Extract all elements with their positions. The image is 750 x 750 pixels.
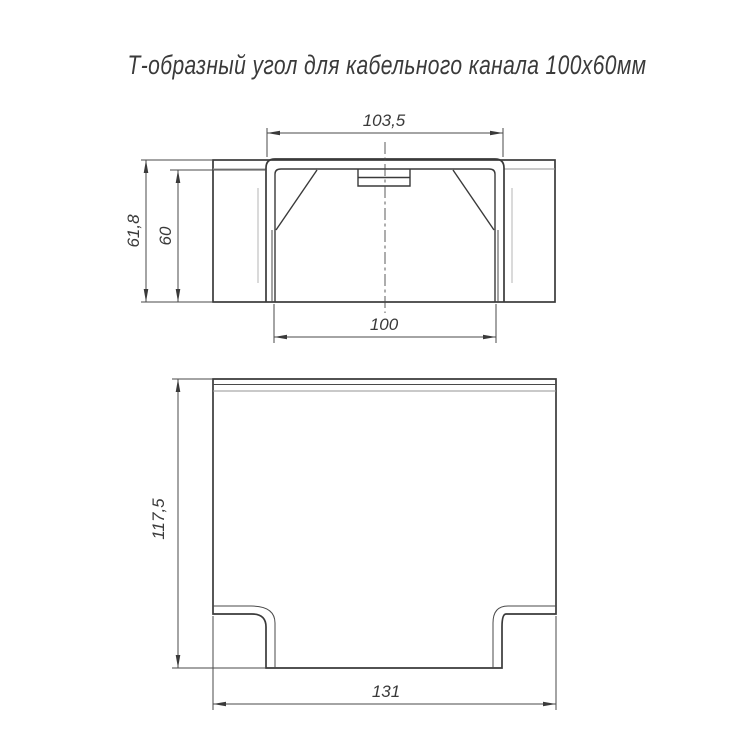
dim-label-outer-width: 103,5 xyxy=(363,111,406,130)
dim-front-inner-height: 60 xyxy=(156,170,266,302)
technical-drawing: Т-образный угол для кабельного канала 10… xyxy=(0,0,750,750)
dim-label-inner-height: 60 xyxy=(156,226,175,245)
dim-label-outer-height: 61,8 xyxy=(124,214,143,248)
dim-label-inner-width: 100 xyxy=(370,315,399,334)
dim-front-inner-width: 100 xyxy=(274,304,496,343)
drawing-sheet: Т-образный угол для кабельного канала 10… xyxy=(0,0,750,750)
front-view: 103,5 100 61,8 60 xyxy=(124,111,555,343)
dim-plan-height: 117,5 xyxy=(149,379,266,668)
dim-plan-width: 131 xyxy=(213,616,556,710)
plan-body-outline xyxy=(213,379,556,668)
drawing-title: Т-образный угол для кабельного канала 10… xyxy=(128,50,647,80)
dim-label-plan-height: 117,5 xyxy=(149,498,168,540)
plan-view: 117,5 131 xyxy=(149,379,556,710)
front-corner-brace-right xyxy=(453,170,494,230)
front-corner-brace-left xyxy=(276,170,317,230)
dim-label-plan-width: 131 xyxy=(372,682,400,701)
